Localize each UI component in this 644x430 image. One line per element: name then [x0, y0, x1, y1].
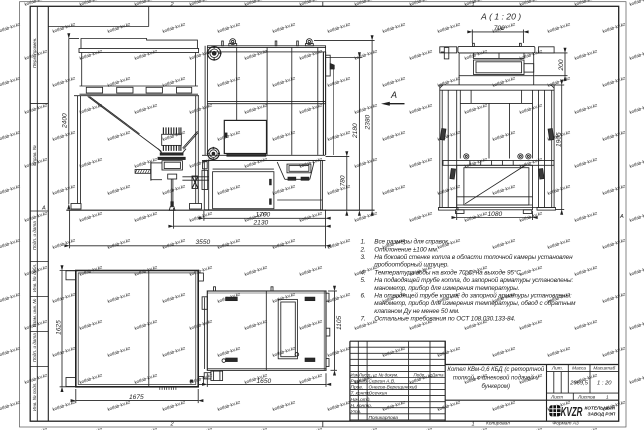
svg-text:2.: 2. — [360, 246, 366, 253]
svg-text:2130: 2130 — [253, 220, 269, 227]
svg-text:1080: 1080 — [488, 211, 503, 218]
svg-text:Подп. и дата: Подп. и дата — [32, 221, 37, 250]
svg-text:2380: 2380 — [365, 114, 372, 130]
svg-text:Поликарпова: Поликарпова — [369, 415, 399, 421]
svg-text:700: 700 — [494, 25, 505, 32]
svg-text:манометр, прибор для измерения: манометр, прибор для измерения температу… — [374, 284, 519, 292]
svg-text:Масса: Масса — [572, 366, 586, 371]
svg-text:клапаном Ду не менее 50 мм.: клапаном Ду не менее 50 мм. — [374, 308, 459, 315]
svg-text:1: 1 — [472, 2, 475, 8]
svg-text:2069,5: 2069,5 — [569, 381, 589, 387]
svg-text:780: 780 — [339, 175, 346, 186]
svg-text:Инв. № дубл.: Инв. № дубл. — [32, 264, 37, 292]
svg-text:На боковой стенке котла в обла: На боковой стенке котла в области топочн… — [374, 253, 573, 261]
svg-text:Лист: Лист — [358, 372, 371, 377]
svg-text:бункером): бункером) — [482, 384, 511, 390]
svg-text:4.: 4. — [361, 269, 366, 276]
svg-text:Подп. и дата: Подп. и дата — [32, 333, 37, 362]
svg-text:На отводящей трубе котла, до з: На отводящей трубе котла, до запорной ар… — [374, 292, 572, 300]
svg-text:6.: 6. — [361, 293, 366, 300]
svg-text:пробоотборный штуцер.: пробоотборный штуцер. — [374, 261, 449, 269]
svg-text:На подводящей трубе котла, до: На подводящей трубе котла, до запорной а… — [374, 276, 573, 284]
svg-text:1625: 1625 — [55, 320, 62, 335]
svg-text:Лит.: Лит. — [551, 366, 563, 371]
svg-text:Котел КВм-0,6 КБД (с ретортной: Котел КВм-0,6 КБД (с ретортной — [447, 366, 544, 373]
svg-text:Все размеры для справок.: Все размеры для справок. — [374, 238, 449, 246]
svg-text:ЗАВОД РЭП: ЗАВОД РЭП — [588, 411, 616, 417]
svg-text:Нач.отд.: Нач.отд. — [351, 397, 371, 403]
svg-text:топкой, с шнековой подачей и: топкой, с шнековой подачей и — [453, 374, 540, 381]
svg-text:Н. контр.: Н. контр. — [351, 403, 373, 409]
svg-text:Справ. №: Справ. № — [32, 145, 37, 166]
svg-text:Изм: Изм — [350, 372, 358, 377]
svg-text:Разраб.: Разраб. — [351, 379, 368, 385]
svg-text:1105: 1105 — [336, 315, 343, 330]
svg-text:3.: 3. — [361, 254, 366, 261]
svg-text:Пров.: Пров. — [351, 385, 364, 391]
svg-text:А: А — [41, 206, 46, 212]
svg-text:Формат А3: Формат А3 — [552, 421, 579, 427]
svg-text:2180: 2180 — [352, 123, 359, 139]
svg-text:А: А — [390, 90, 397, 100]
svg-text:Листов: Листов — [577, 395, 596, 400]
svg-text:1675: 1675 — [129, 394, 144, 401]
svg-text:KVZR: KVZR — [561, 405, 583, 419]
svg-text:1: 1 — [472, 422, 475, 428]
svg-text:манометр, прибор для измерения: манометр, прибор для измерения температу… — [374, 299, 576, 307]
svg-text:Взам. инв. №: Взам. инв. № — [32, 299, 37, 327]
svg-text:200: 200 — [558, 59, 565, 71]
svg-text:Остальные требования по ОСТ 10: Остальные требования по ОСТ 108.030.133-… — [374, 315, 515, 323]
svg-text:1650: 1650 — [257, 378, 272, 385]
svg-text:Температура воды на входе 70°С: Температура воды на входе 70°С, на выход… — [374, 268, 522, 276]
svg-text:А ( 1 : 20 ): А ( 1 : 20 ) — [480, 11, 521, 21]
svg-text:А: А — [619, 214, 624, 220]
svg-text:Инв. № подл.: Инв. № подл. — [32, 382, 37, 411]
svg-text:Лист: Лист — [550, 395, 563, 400]
svg-text:1 : 20: 1 : 20 — [597, 381, 612, 387]
svg-text:Онегов-Верещинский: Онегов-Верещинский — [369, 384, 418, 391]
svg-text:№ докум.: № докум. — [379, 372, 399, 377]
svg-text:1905: 1905 — [555, 132, 562, 147]
svg-text:Осечкин: Осечкин — [369, 391, 388, 397]
svg-text:7.: 7. — [361, 316, 366, 323]
svg-text:3550: 3550 — [196, 239, 211, 246]
svg-text:Отклонение ±100 мм.: Отклонение ±100 мм. — [374, 246, 438, 253]
svg-text:Масштаб: Масштаб — [593, 366, 615, 371]
svg-text:Подп.: Подп. — [414, 372, 426, 377]
svg-text:1.: 1. — [361, 239, 366, 246]
svg-text:1: 1 — [606, 395, 609, 400]
svg-text:5.: 5. — [361, 277, 366, 284]
svg-text:Утв.: Утв. — [351, 409, 362, 415]
svg-text:Копировал: Копировал — [486, 421, 510, 427]
svg-text:Перв. примен.: Перв. примен. — [32, 37, 37, 68]
svg-text:Дата: Дата — [431, 372, 444, 377]
svg-text:1700: 1700 — [256, 212, 271, 219]
svg-text:Сергин А.В.: Сергин А.В. — [369, 379, 396, 385]
svg-text:2400: 2400 — [62, 113, 69, 129]
